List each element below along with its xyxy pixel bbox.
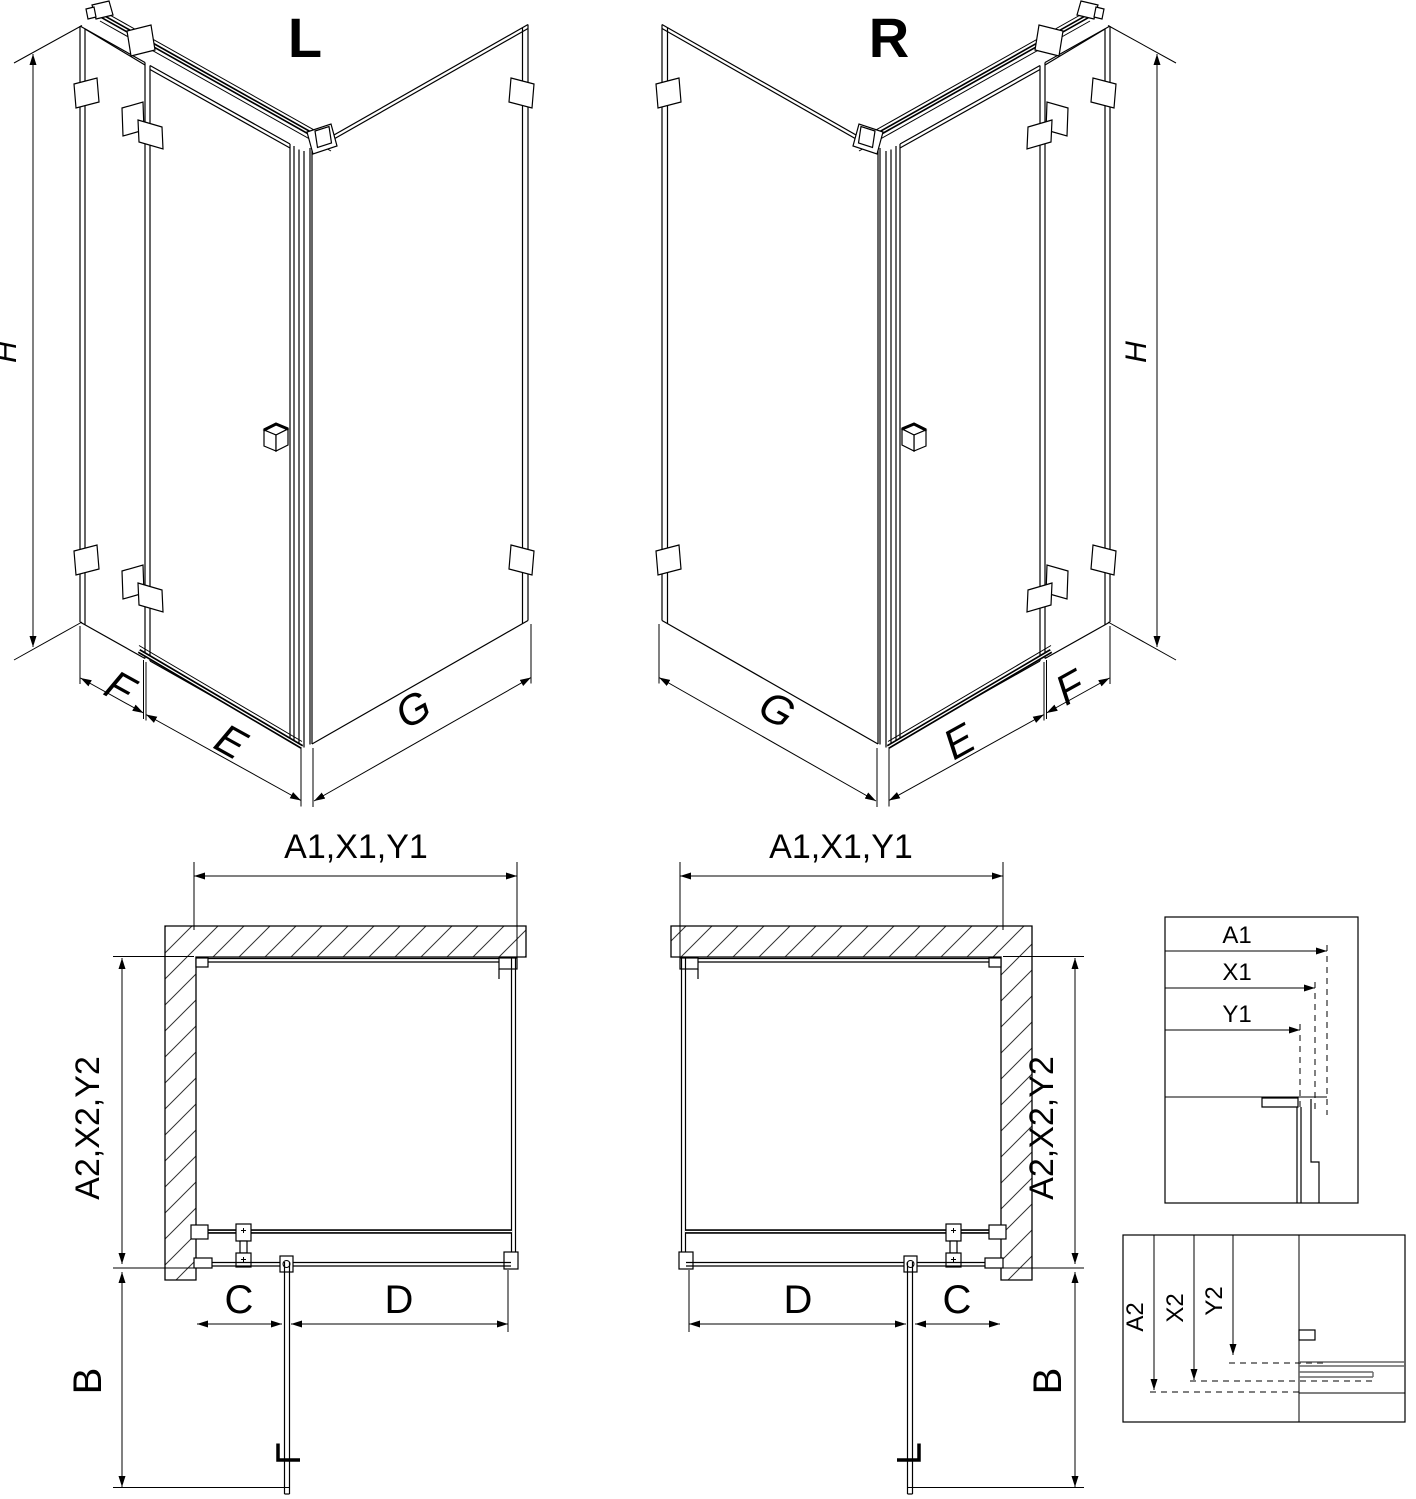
dim-label-a1x1y1-right: A1,X1,Y1 [769,828,913,866]
detail-depth-reference: A2 X2 Y2 [1122,1235,1405,1422]
dim-label-f-right: F [1047,659,1094,714]
detail-label-y1: Y1 [1222,1001,1251,1028]
variant-label-right: R [869,6,909,69]
detail-width-box [1165,917,1358,1203]
dim-label-h-right: H [1120,341,1153,363]
iso-geometry-left [14,1,534,807]
dim-label-b-left: B [66,1368,110,1395]
dim-label-d-left: D [385,1278,414,1322]
dim-label-a1x1y1-left: A1,X1,Y1 [284,828,428,866]
variant-label-left: L [288,6,322,69]
wall-hatch-right-plan [671,926,1032,1280]
dim-label-d-right: D [784,1278,813,1322]
detail-label-x1: X1 [1222,959,1251,986]
detail-width-reference: A1 X1 Y1 [1165,917,1358,1203]
plan-view-right: A1,X1,Y1 A2,X2,Y2 C D B [671,828,1084,1494]
dim-label-c-left: C [225,1278,254,1322]
dim-label-g-right: G [751,681,802,738]
dim-label-g-left: G [387,681,438,738]
iso-view-left: L H F E G [0,1,534,807]
shower-enclosure-diagram: L H F E G R H F E G A1,X1,Y1 A2,X2,Y2 C … [0,0,1416,1499]
dim-label-f-left: F [97,661,144,716]
dim-label-h-left: H [0,341,23,363]
dim-label-a2x2y2-left: A2,X2,Y2 [69,1056,107,1200]
dim-label-a2x2y2-right: A2,X2,Y2 [1023,1056,1061,1200]
detail-label-x2: X2 [1162,1293,1189,1322]
detail-depth-box [1123,1235,1405,1422]
dim-label-c-right: C [943,1278,972,1322]
iso-geometry-right [656,1,1176,807]
dim-label-e-left: E [207,714,255,769]
detail-label-a2: A2 [1122,1302,1149,1331]
detail-label-a1: A1 [1222,922,1251,949]
dim-label-e-right: E [935,713,983,768]
wall-hatch-left-plan [165,926,526,1280]
iso-view-right: R H F E G [656,1,1176,807]
technical-drawing-page: L H F E G R H F E G A1,X1,Y1 A2,X2,Y2 C … [0,0,1416,1499]
detail-label-y2: Y2 [1201,1286,1228,1315]
plan-view-left: A1,X1,Y1 A2,X2,Y2 C D B [66,828,526,1494]
dim-label-b-right: B [1026,1368,1070,1395]
